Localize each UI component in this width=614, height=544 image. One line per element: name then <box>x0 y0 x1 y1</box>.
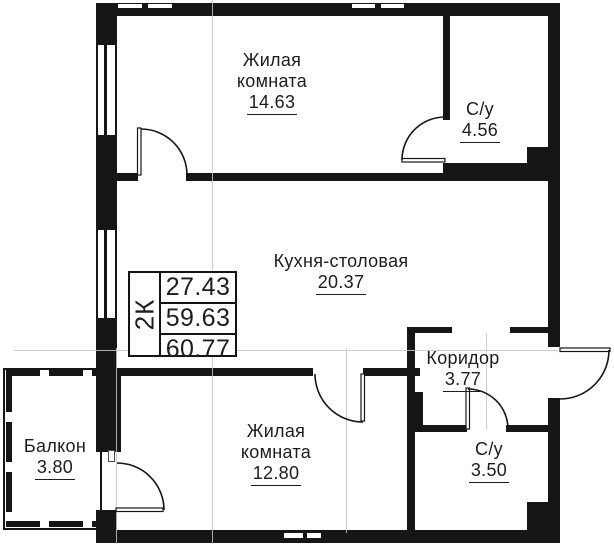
room-area: 4.56 <box>460 120 500 143</box>
room-name: С/у <box>439 439 539 460</box>
room-label-bath-bottom: С/у 3.50 <box>439 439 539 483</box>
door-arc-living-top <box>141 129 187 175</box>
unit-type-label: 2К <box>129 298 160 330</box>
door-arc-bath-bottom <box>468 389 508 429</box>
area-value-living: 27.43 <box>161 273 235 304</box>
room-name: комната <box>196 442 356 463</box>
apartment-stats-box: 2К 27.43 59.63 60.77 <box>128 271 237 357</box>
room-label-bath-top: С/у 4.56 <box>430 99 530 143</box>
room-area: 3.77 <box>443 369 483 392</box>
area-values: 27.43 59.63 60.77 <box>161 273 235 355</box>
area-value-without-balcony: 59.63 <box>161 304 235 335</box>
room-name: Кухня-столовая <box>241 251 441 272</box>
door-leaf-bath-bottom <box>466 388 470 429</box>
room-area: 14.63 <box>247 92 298 115</box>
room-name: С/у <box>430 99 530 120</box>
unit-type-cell: 2К <box>130 273 161 355</box>
door-leaf-balcony <box>116 508 163 512</box>
door-leaf-living-top <box>138 128 142 175</box>
room-name: Балкон <box>5 436 105 457</box>
door-leaf-living-bottom <box>361 374 365 421</box>
room-name: Жилая <box>196 421 356 442</box>
room-area: 12.80 <box>251 463 302 486</box>
floor-plan: Жилая комната 14.63 С/у 4.56 Кухня-столо… <box>0 0 614 544</box>
door-arc-balcony <box>117 463 164 510</box>
room-label-kitchen: Кухня-столовая 20.37 <box>241 251 441 295</box>
door-leaf-bath-top <box>402 159 445 163</box>
room-label-corridor: Коридор 3.77 <box>403 348 523 392</box>
room-area: 20.37 <box>316 272 367 295</box>
room-area: 3.50 <box>469 460 509 483</box>
door-leaf-entrance <box>560 348 610 352</box>
room-name: комната <box>192 71 352 92</box>
door-arc-entrance <box>560 350 609 399</box>
room-label-living-bottom: Жилая комната 12.80 <box>196 421 356 486</box>
room-area: 3.80 <box>35 457 75 480</box>
room-name: Коридор <box>403 348 523 369</box>
room-name: Жилая <box>192 50 352 71</box>
balcony-door-jamb <box>108 450 115 462</box>
room-label-balcony: Балкон 3.80 <box>5 436 105 480</box>
area-value-total: 60.77 <box>161 335 235 364</box>
door-arc-living-bottom <box>315 374 363 422</box>
room-label-living-top: Жилая комната 14.63 <box>192 50 352 115</box>
